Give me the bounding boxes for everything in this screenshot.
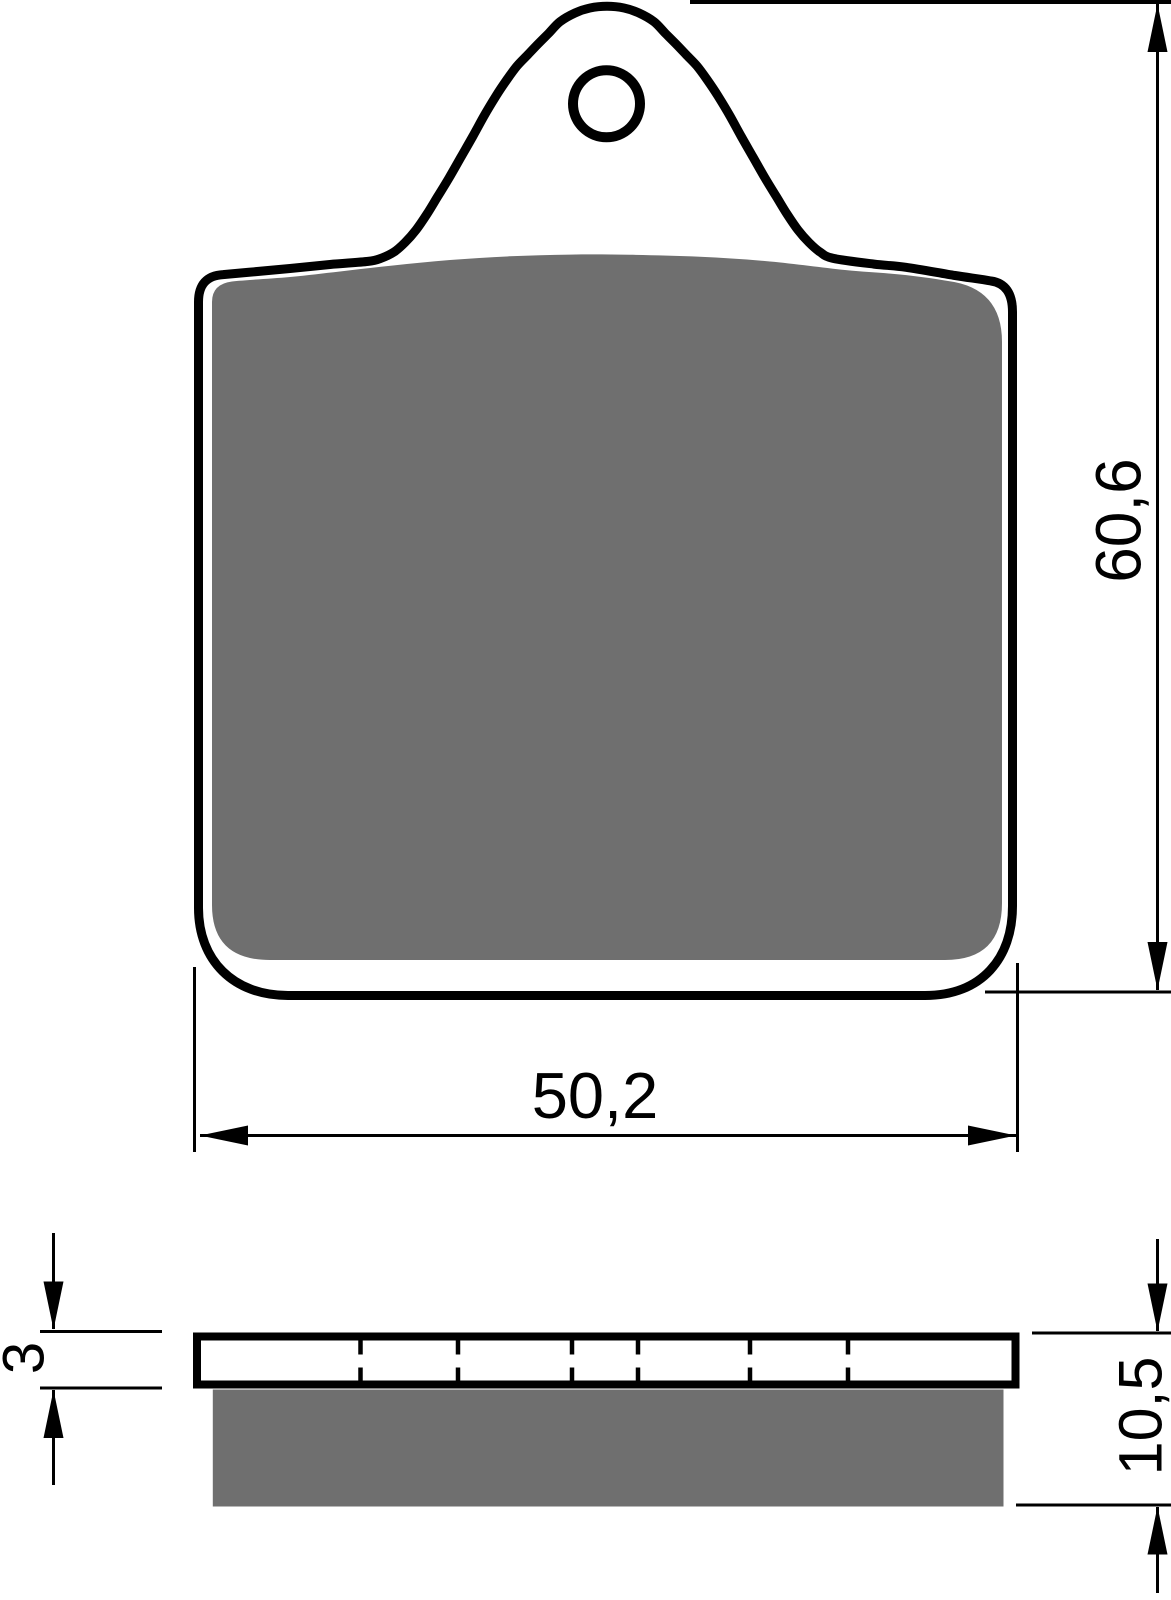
svg-text:10,5: 10,5 [1107, 1357, 1171, 1476]
svg-text:60,6: 60,6 [1083, 458, 1155, 583]
svg-text:3: 3 [0, 1342, 57, 1374]
svg-text:50,2: 50,2 [532, 1059, 659, 1132]
